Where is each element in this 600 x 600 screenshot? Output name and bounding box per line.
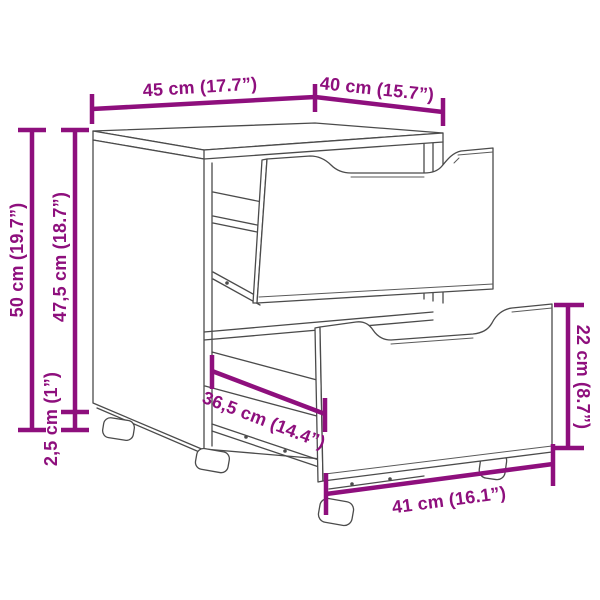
cabinet-drawing: [93, 123, 552, 527]
screw-dot: [225, 281, 229, 285]
screw-dot: [283, 449, 287, 453]
cabinet-left-panel: [93, 140, 204, 450]
foot-front-center: [317, 497, 355, 527]
screw-dot: [244, 435, 248, 439]
dim-label-foot-height: 2,5 cm (1”): [41, 372, 61, 466]
bottom-drawer: [315, 304, 552, 489]
screw-dot: [350, 482, 354, 486]
screw-dot: [388, 477, 392, 481]
dim-label-top-width: 45 cm (17.7”): [142, 74, 258, 101]
dim-label-drawer-front-width: 41 cm (16.1”): [391, 483, 507, 518]
dim-label-drawer-front-height: 22 cm (8.7”): [573, 325, 593, 429]
dim-label-inner-depth: 36,5 cm (14.4”): [200, 387, 329, 452]
bottom-drawer-front: [320, 304, 552, 481]
dim-label-body-height: 47,5 cm (18.7”): [50, 192, 70, 322]
dim-label-total-height: 50 cm (19.7”): [7, 203, 27, 318]
top-drawer: [253, 148, 493, 303]
dimension-diagram: 45 cm (17.7”) 40 cm (15.7”) 50 cm (19.7”…: [0, 0, 600, 600]
diagram-canvas: 45 cm (17.7”) 40 cm (15.7”) 50 cm (19.7”…: [0, 0, 600, 600]
foot-back-left: [102, 417, 136, 442]
top-drawer-front: [257, 148, 493, 303]
